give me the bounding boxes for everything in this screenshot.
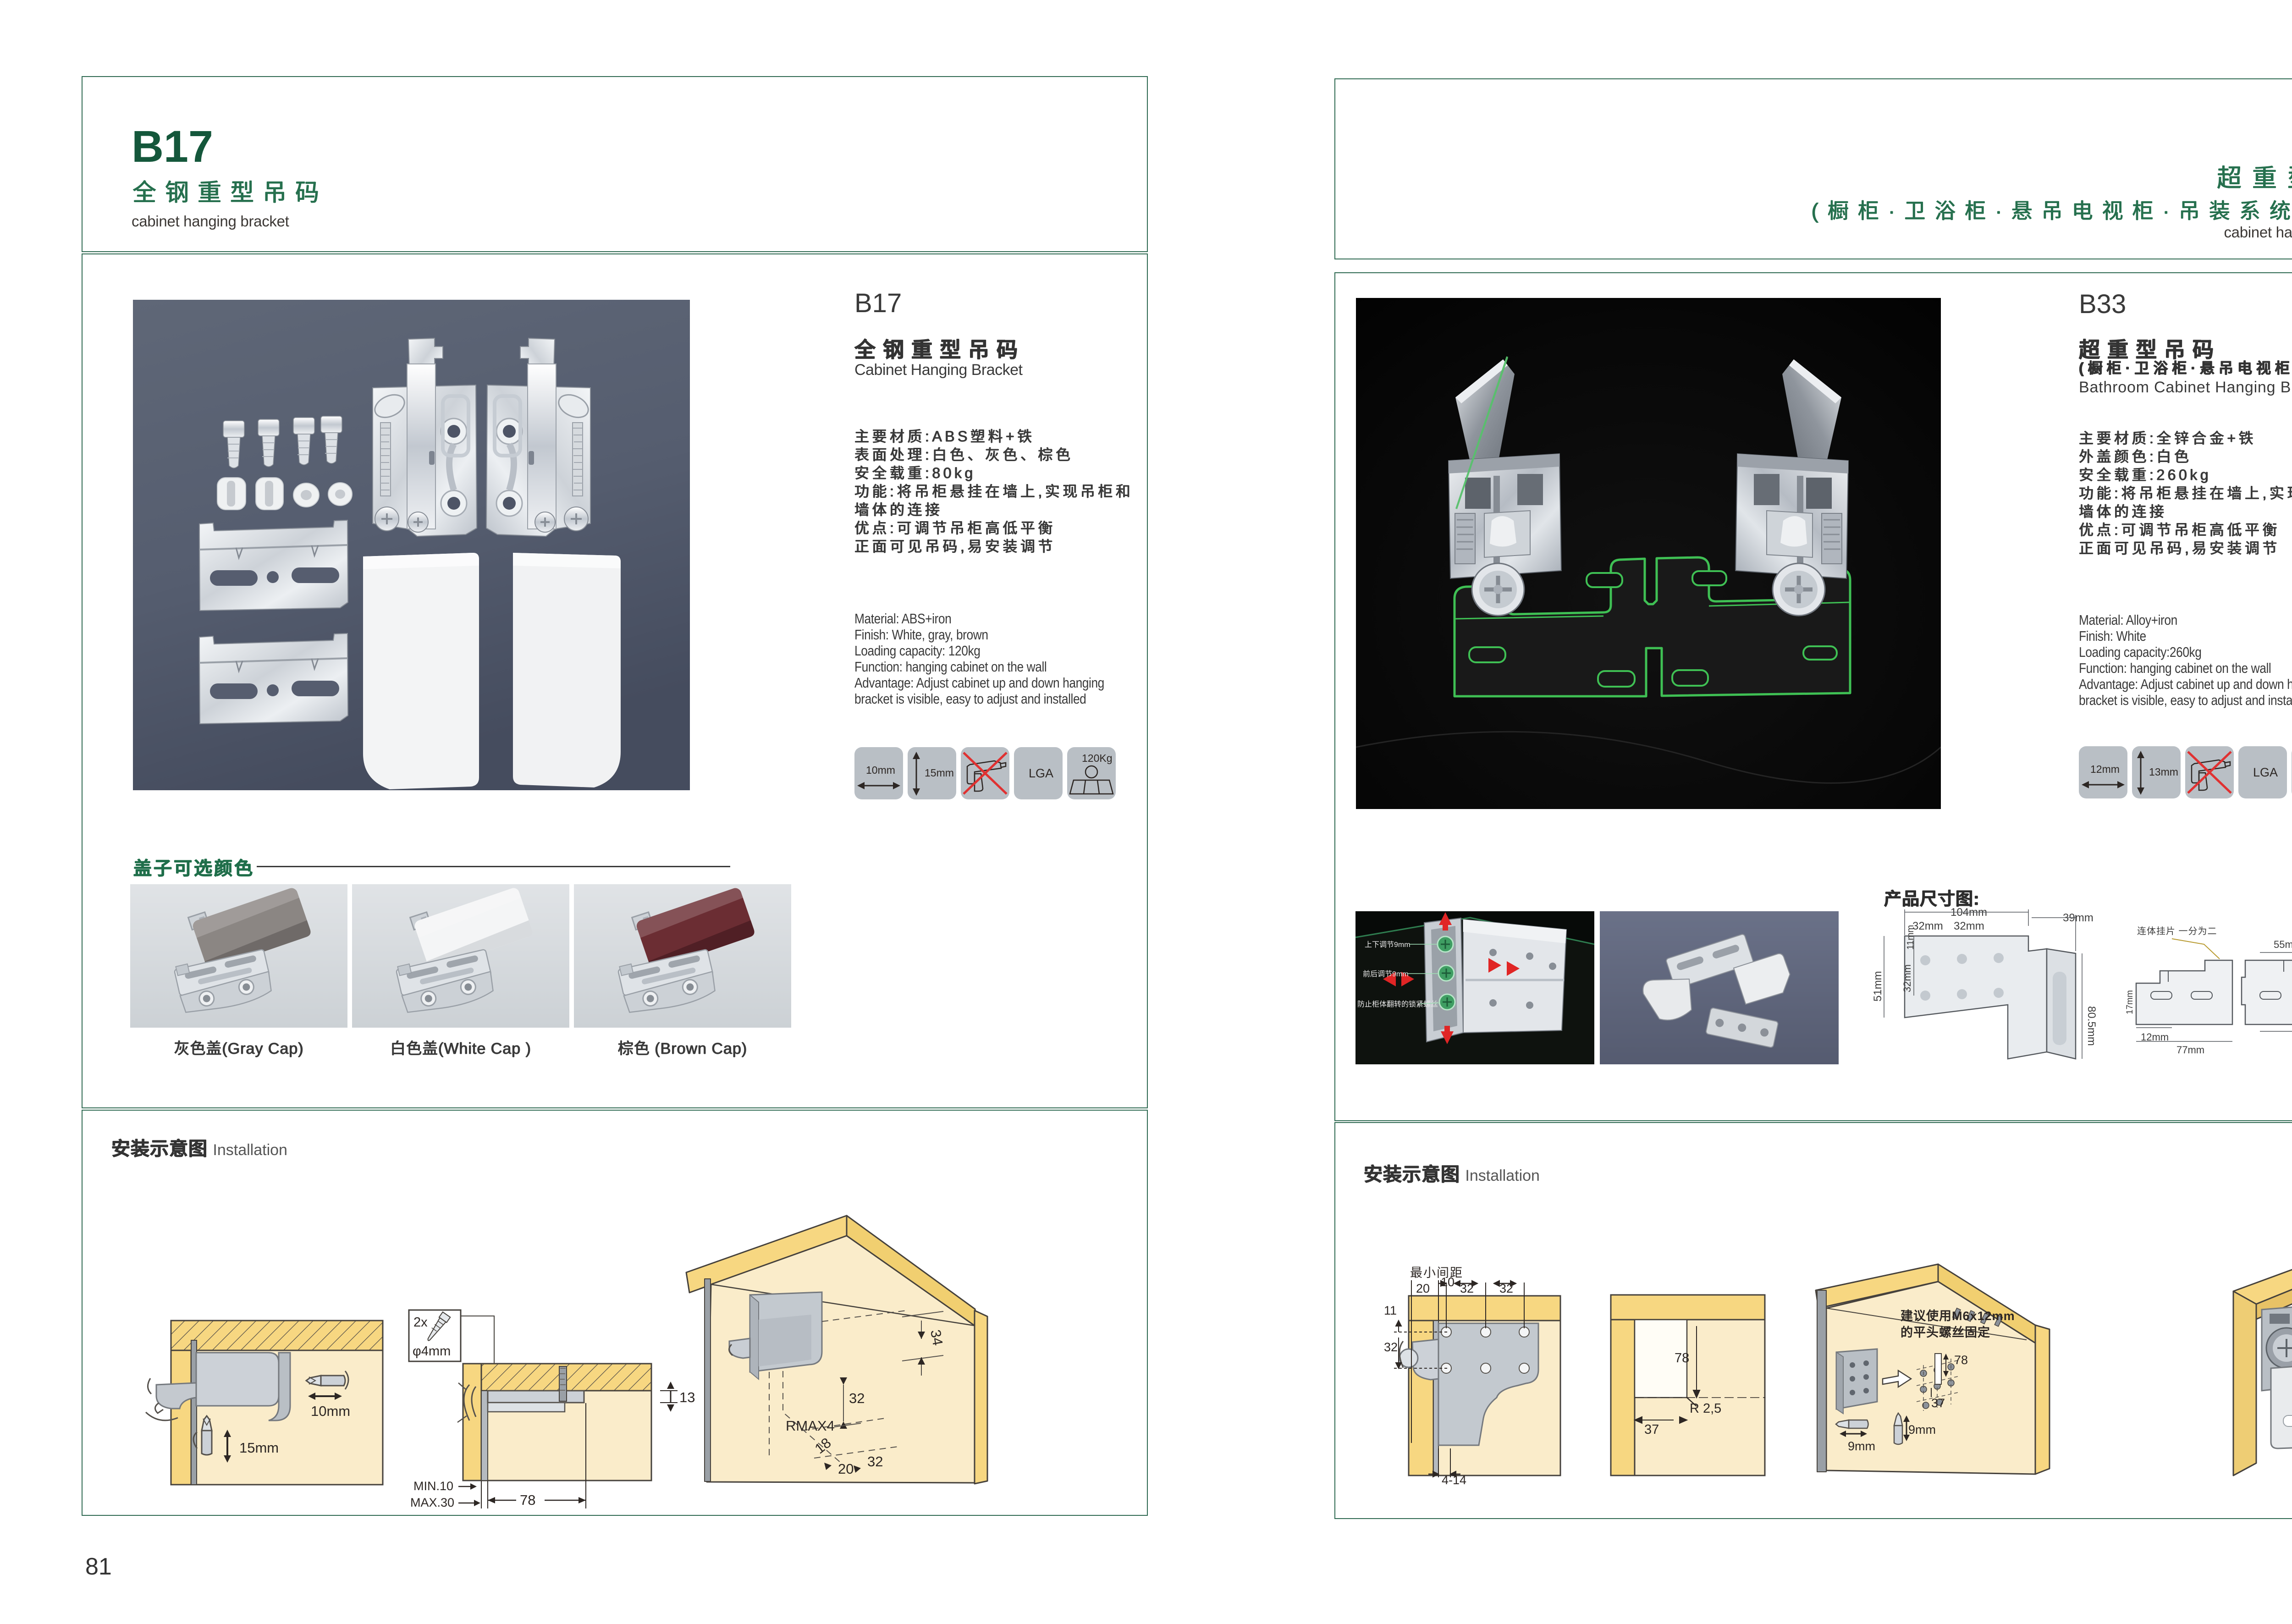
svg-text:34: 34 bbox=[927, 1328, 946, 1347]
svg-text:LGA: LGA bbox=[2253, 765, 2278, 779]
svg-text:51mm: 51mm bbox=[1872, 971, 1884, 1002]
svg-text:LGA: LGA bbox=[1029, 766, 1053, 780]
svg-text:13: 13 bbox=[679, 1389, 695, 1405]
svg-text:防止柜体翻转的锁紧螺丝: 防止柜体翻转的锁紧螺丝 bbox=[1357, 1000, 1438, 1008]
svg-text:最小间距: 最小间距 bbox=[1410, 1266, 1463, 1280]
svg-text:10mm: 10mm bbox=[866, 764, 895, 776]
svg-text:10mm: 10mm bbox=[311, 1403, 350, 1419]
svg-text:R 2,5: R 2,5 bbox=[1690, 1401, 1721, 1416]
svg-text:上下调节9mm: 上下调节9mm bbox=[1365, 941, 1410, 949]
svg-text:78: 78 bbox=[1675, 1351, 1689, 1365]
svg-text:77mm: 77mm bbox=[2176, 1044, 2204, 1056]
svg-text:连体挂片 一分为二: 连体挂片 一分为二 bbox=[2137, 926, 2217, 936]
svg-text:104mm: 104mm bbox=[1950, 908, 1987, 919]
svg-text:20: 20 bbox=[1416, 1282, 1430, 1295]
svg-text:15mm: 15mm bbox=[239, 1440, 279, 1456]
svg-text:32: 32 bbox=[849, 1390, 865, 1406]
svg-text:MIN.10: MIN.10 bbox=[413, 1479, 453, 1493]
svg-text:78: 78 bbox=[1954, 1353, 1968, 1367]
svg-text:32: 32 bbox=[867, 1453, 883, 1470]
svg-text:RMAX4: RMAX4 bbox=[786, 1418, 835, 1434]
svg-text:MAX.30: MAX.30 bbox=[410, 1496, 454, 1509]
svg-text:32mm: 32mm bbox=[1954, 920, 1984, 932]
svg-text:78: 78 bbox=[520, 1492, 535, 1508]
svg-text:9mm: 9mm bbox=[1848, 1439, 1875, 1453]
svg-text:φ4mm: φ4mm bbox=[413, 1344, 451, 1359]
svg-text:37: 37 bbox=[1931, 1396, 1945, 1410]
svg-text:前后调节9mm: 前后调节9mm bbox=[1363, 970, 1409, 978]
svg-text:的平头螺丝固定: 的平头螺丝固定 bbox=[1901, 1325, 1990, 1339]
svg-text:32mm: 32mm bbox=[1912, 920, 1943, 932]
svg-text:32: 32 bbox=[1384, 1340, 1398, 1354]
svg-text:15mm: 15mm bbox=[925, 767, 954, 779]
svg-text:建议使用M6x12mm: 建议使用M6x12mm bbox=[1901, 1309, 2015, 1323]
svg-text:32mm: 32mm bbox=[1901, 964, 1913, 992]
svg-text:2x: 2x bbox=[413, 1315, 428, 1330]
svg-text:120Kg: 120Kg bbox=[1082, 752, 1113, 764]
svg-text:12mm: 12mm bbox=[2090, 763, 2120, 775]
svg-text:11: 11 bbox=[1384, 1304, 1397, 1317]
svg-text:37: 37 bbox=[1644, 1422, 1659, 1437]
svg-text:9mm: 9mm bbox=[1908, 1423, 1936, 1437]
svg-text:17mm: 17mm bbox=[2125, 990, 2135, 1014]
svg-text:13mm: 13mm bbox=[2149, 766, 2178, 778]
svg-text:80.5mm: 80.5mm bbox=[2085, 1006, 2098, 1046]
svg-text:55mm: 55mm bbox=[2274, 939, 2292, 950]
svg-text:20: 20 bbox=[838, 1461, 854, 1477]
